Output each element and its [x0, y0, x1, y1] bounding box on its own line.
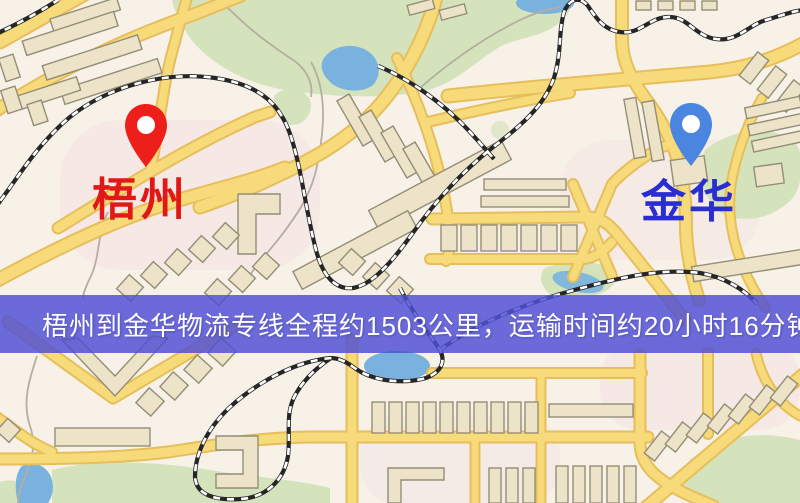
- origin-marker[interactable]: [124, 103, 168, 169]
- route-info-banner: 梧州到金华物流专线全程约1503公里，运输时间约20小时16分钟.: [0, 295, 800, 353]
- route-info-text: 梧州到金华物流专线全程约1503公里，运输时间约20小时16分钟.: [0, 306, 800, 343]
- origin-pin-icon[interactable]: [124, 103, 168, 169]
- origin-label: 梧州: [92, 177, 188, 222]
- destination-marker[interactable]: [669, 102, 713, 168]
- map-canvas[interactable]: [0, 0, 800, 503]
- destination-label: 金华: [641, 179, 737, 224]
- destination-pin-icon[interactable]: [669, 102, 713, 168]
- map-view[interactable]: 梧州 金华 梧州到金华物流专线全程约1503公里，运输时间约20小时16分钟.: [0, 0, 800, 503]
